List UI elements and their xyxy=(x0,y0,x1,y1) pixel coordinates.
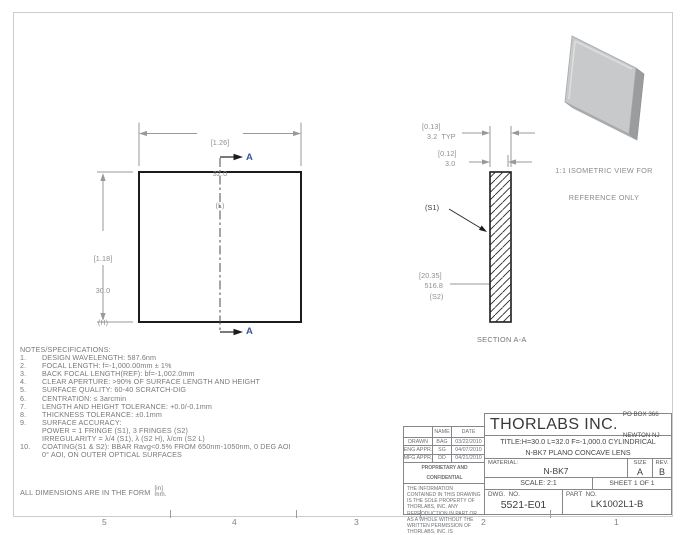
approvals-header-row: NAME DATE xyxy=(404,427,485,438)
units-prefix: ALL DIMENSIONS ARE IN THE FORM xyxy=(20,488,151,497)
notes-block: NOTES/SPECIFICATIONS: 1.DESIGN WAVELENGT… xyxy=(20,346,355,459)
dwg-cell: DWG. NO. 5521-E01 xyxy=(485,490,563,515)
number-row: DWG. NO. 5521-E01 PART NO. LK1002L1-B xyxy=(485,490,671,515)
material-value: N-BK7 xyxy=(485,466,627,476)
part-cell: PART NO. LK1002L1-B xyxy=(563,490,671,515)
section-cut-label-top: A xyxy=(246,152,253,163)
drawing-title-line2: N-BK7 PLANO CONCAVE LENS xyxy=(485,448,671,459)
length-dim-axis: (L) xyxy=(170,201,270,212)
edge-thickness-inch: [0.13] xyxy=(422,122,441,131)
edge-thickness-mm: 3.2 TYP xyxy=(427,132,456,141)
height-dim-axis: (H) xyxy=(78,318,128,329)
height-dimension: [1.18] 30.0 (H) xyxy=(78,232,128,351)
dwg-number: 5521-E01 xyxy=(485,499,562,511)
height-dim-mm: 30.0 xyxy=(78,286,128,297)
title-block: THORLABS INC. PO BOX 366 NEWTON NJ TITLE… xyxy=(484,413,672,515)
approval-row: DRAWN BAG 03/22/2010 xyxy=(404,438,485,446)
length-dim-inch: [1.26] xyxy=(170,138,270,149)
zone-tick xyxy=(296,510,297,518)
zone-number: 5 xyxy=(102,517,107,527)
material-row: MATERIAL: N-BK7 SIZE A REV. B xyxy=(485,459,671,478)
height-dim-inch: [1.18] xyxy=(78,254,128,265)
scale-row: SCALE: 2:1 SHEET 1 OF 1 xyxy=(485,478,671,490)
drawing-title-line1: TITLE:H=30.0 L=32.0 F=-1,000.0 CYLINDRIC… xyxy=(485,437,671,448)
company-name: THORLABS INC. xyxy=(490,416,618,434)
surface1-label: (S1) xyxy=(425,203,439,212)
zone-tick xyxy=(550,510,551,518)
note-item: 0° AOI, ON OUTER OPTICAL SURFACES xyxy=(20,451,355,459)
scale-cell: SCALE: 2:1 xyxy=(485,478,593,489)
zone-tick xyxy=(420,510,421,518)
isometric-plate xyxy=(565,36,644,140)
zone-number: 1 xyxy=(614,517,619,527)
proprietary-text: THE INFORMATION CONTAINED IN THIS DRAWIN… xyxy=(404,484,485,535)
part-number: LK1002L1-B xyxy=(563,499,671,510)
material-cell: MATERIAL: N-BK7 xyxy=(485,459,628,477)
rev-cell: REV. B xyxy=(653,459,671,477)
company-row: THORLABS INC. PO BOX 366 NEWTON NJ xyxy=(485,414,671,436)
section-cut-label-bottom: A xyxy=(246,326,253,337)
zone-tick xyxy=(170,510,171,518)
section-view-body xyxy=(449,172,511,322)
approval-row: ENG APPR. SG 04/07/2010 xyxy=(404,446,485,454)
zone-number: 3 xyxy=(354,517,359,527)
center-thickness-inch: [0.12] xyxy=(438,149,457,158)
isometric-caption: 1:1 ISOMETRIC VIEW FOR REFERENCE ONLY xyxy=(544,148,664,220)
date-header: DATE xyxy=(452,427,485,437)
center-thickness-mm: 3.0 xyxy=(445,159,455,168)
zone-number: 4 xyxy=(232,517,237,527)
drawing-sheet: [1.26] 32.0 (L) [1.18] 30.0 (H) A A [0.1… xyxy=(0,0,685,535)
radius-dim-mm: 516.8 xyxy=(425,281,444,290)
zone-number: 2 xyxy=(481,517,486,527)
units-fraction: [in] mm. xyxy=(155,486,167,499)
approvals-table: NAME DATE DRAWN BAG 03/22/2010 ENG APPR.… xyxy=(403,426,485,515)
length-dim-mm: 32.0 xyxy=(170,169,270,180)
title-row: TITLE:H=30.0 L=32.0 F=-1,000.0 CYLINDRIC… xyxy=(485,436,671,459)
units-note: ALL DIMENSIONS ARE IN THE FORM [in] mm. xyxy=(20,488,167,501)
surface2-label: (S2) xyxy=(430,292,444,301)
size-value: A xyxy=(628,467,652,477)
approval-row: MFG APPR. DD 04/21/2010 xyxy=(404,455,485,463)
rev-value: B xyxy=(653,467,671,477)
section-caption: SECTION A-A xyxy=(477,335,527,344)
name-header: NAME xyxy=(433,427,452,437)
length-dimension: [1.26] 32.0 (L) xyxy=(170,117,270,234)
sheet-cell: SHEET 1 OF 1 xyxy=(593,478,671,489)
proprietary-heading: PROPRIETARY AND CONFIDENTIAL xyxy=(404,463,485,484)
size-cell: SIZE A xyxy=(628,459,653,477)
radius-dim-inch: [20.35] xyxy=(419,271,442,280)
